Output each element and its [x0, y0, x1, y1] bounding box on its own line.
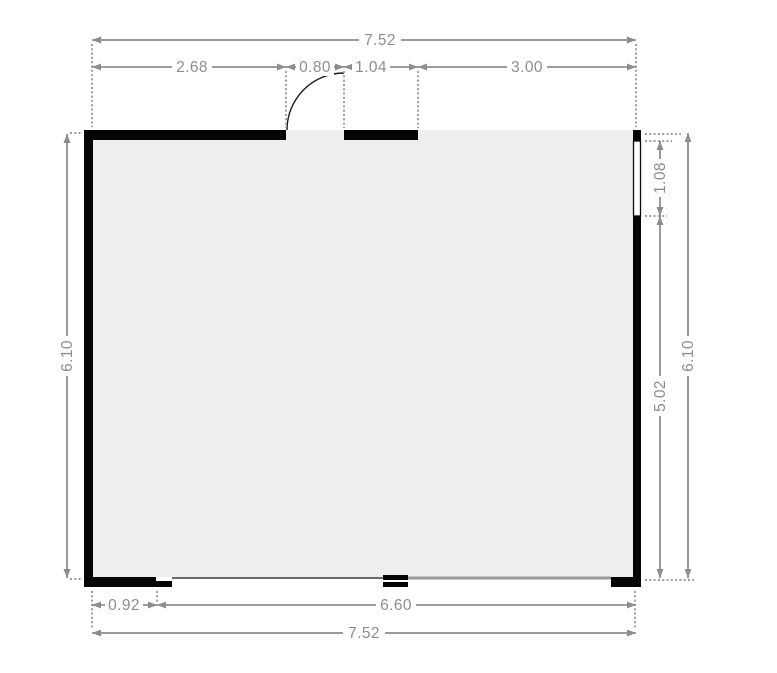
dim-label-top-seg3: 1.04 [355, 59, 387, 76]
dim-top-seg3: 1.04 [344, 58, 418, 76]
dim-right-seg1: 1.08 [651, 141, 669, 216]
dim-label-right-seg2: 5.02 [652, 380, 669, 412]
arrowhead [627, 602, 636, 609]
arrowhead [627, 64, 636, 71]
arrowhead [627, 630, 636, 637]
dim-label-right-total: 6.10 [680, 340, 697, 372]
arrowhead [344, 64, 353, 71]
dim-right-total: 6.10 [679, 133, 697, 578]
arrowhead [64, 134, 71, 143]
arrowhead [92, 64, 101, 71]
wall-top-left-segment[interactable] [84, 130, 286, 140]
wall-bottom-left-stub[interactable] [156, 581, 172, 587]
window[interactable] [634, 141, 641, 216]
wall-bottom-mid-stub-gap [383, 580, 408, 582]
arrowhead [627, 37, 636, 44]
wall-top-mid-segment[interactable] [344, 130, 418, 140]
floor-plan-canvas[interactable]: 7.52 2.68 0.80 1.04 3.00 [0, 0, 777, 673]
dim-left-total: 6.10 [58, 134, 76, 578]
dim-right-seg2: 5.02 [651, 216, 669, 578]
wall-right[interactable] [633, 216, 641, 587]
dim-label-right-seg1: 1.08 [652, 162, 669, 194]
dim-top-total: 7.52 [92, 31, 636, 49]
arrowhead [685, 569, 692, 578]
dim-label-top-seg4: 3.00 [511, 59, 543, 76]
dim-label-top-total: 7.52 [364, 32, 396, 49]
door-swing-arc[interactable] [287, 73, 344, 130]
dim-label-bottom-total: 7.52 [348, 625, 380, 642]
arrowhead [286, 64, 295, 71]
dim-label-bottom-seg2: 6.60 [380, 597, 412, 614]
floor-plan-drawing: 7.52 2.68 0.80 1.04 3.00 [0, 0, 777, 673]
dim-label-bottom-seg1: 0.92 [108, 597, 140, 614]
arrowhead [92, 37, 101, 44]
arrowhead [335, 64, 344, 71]
arrowhead [418, 64, 427, 71]
arrowhead [92, 602, 101, 609]
arrowhead [657, 569, 664, 578]
arrowhead [64, 569, 71, 578]
arrowhead [157, 602, 166, 609]
arrowhead [657, 216, 664, 225]
dim-label-top-seg1: 2.68 [176, 59, 208, 76]
dim-bottom-seg1: 0.92 [92, 596, 157, 614]
arrowhead [685, 133, 692, 142]
dim-top-seg1: 2.68 [92, 58, 286, 76]
arrowhead [657, 207, 664, 216]
dim-bottom-seg2: 6.60 [157, 596, 636, 614]
arrowhead [92, 630, 101, 637]
arrowhead [409, 64, 418, 71]
wall-bottom-right-segment[interactable] [611, 577, 633, 587]
arrowhead [277, 64, 286, 71]
dim-label-top-seg2: 0.80 [299, 59, 331, 76]
room-floor[interactable] [84, 130, 641, 577]
wall-left[interactable] [84, 130, 93, 587]
dim-top-seg4: 3.00 [418, 58, 636, 76]
arrowhead [148, 602, 157, 609]
dim-bottom-total: 7.52 [92, 624, 636, 642]
arrowhead [657, 141, 664, 150]
wall-right-top-cap[interactable] [633, 130, 641, 141]
dim-label-left-total: 6.10 [59, 340, 76, 372]
wall-bottom-left-segment[interactable] [84, 577, 156, 587]
